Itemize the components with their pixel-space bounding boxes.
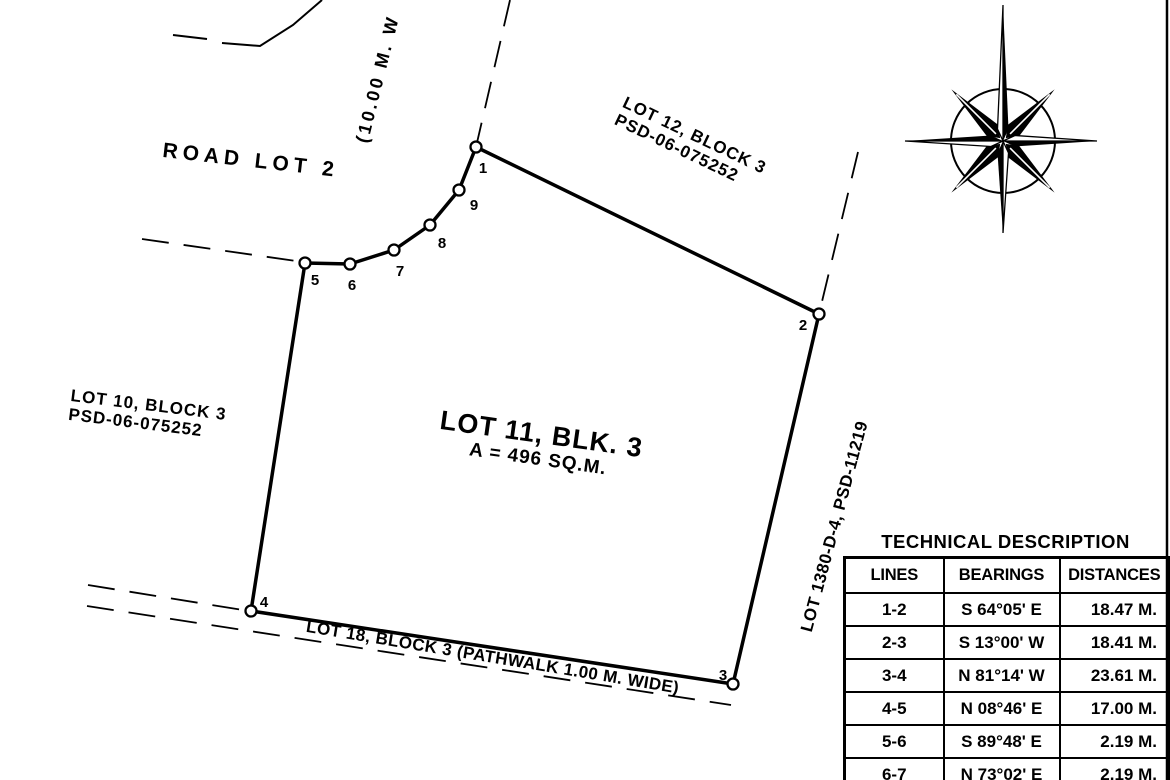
distance-cell: 18.47 M. xyxy=(1060,593,1170,626)
technical-description-title: TECHNICAL DESCRIPTION xyxy=(843,531,1168,556)
distance-cell: 2.19 M. xyxy=(1060,758,1170,780)
dashed-line-to-corner-2 xyxy=(819,152,858,314)
corner-number-2: 2 xyxy=(799,317,807,334)
corner-number-4: 4 xyxy=(260,594,269,611)
corner-number-6: 6 xyxy=(348,277,356,294)
technical-description-table: LINES BEARINGS DISTANCES 1-2 S 64°05' E … xyxy=(843,556,1170,780)
bearing-cell: N 81°14' W xyxy=(944,659,1060,692)
corner-point-7 xyxy=(389,245,400,256)
corner-point-2 xyxy=(814,309,825,320)
corner-number-9: 9 xyxy=(470,197,478,214)
compass-north-point xyxy=(998,5,1009,141)
table-row: 5-6 S 89°48' E 2.19 M. xyxy=(845,725,1170,758)
table-row: 2-3 S 13°00' W 18.41 M. xyxy=(845,626,1170,659)
table-header-row: LINES BEARINGS DISTANCES xyxy=(845,558,1170,594)
compass-west-point xyxy=(905,136,1003,147)
bearing-cell: S 64°05' E xyxy=(944,593,1060,626)
table-row: 3-4 N 81°14' W 23.61 M. xyxy=(845,659,1170,692)
corner-point-6 xyxy=(345,259,356,270)
distance-cell: 23.61 M. xyxy=(1060,659,1170,692)
compass-east-point xyxy=(1003,136,1097,147)
line-cell: 6-7 xyxy=(845,758,944,780)
bearing-cell: S 13°00' W xyxy=(944,626,1060,659)
compass-rose-icon xyxy=(905,5,1097,233)
corner-point-4 xyxy=(246,606,257,617)
corner-point-9 xyxy=(454,185,465,196)
corner-point-8 xyxy=(425,220,436,231)
bearing-cell: N 73°02' E xyxy=(944,758,1060,780)
survey-plan-sheet: 1 2 3 4 5 6 7 8 9 xyxy=(0,0,1170,780)
table-row: 1-2 S 64°05' E 18.47 M. xyxy=(845,593,1170,626)
corner-number-7: 7 xyxy=(396,263,404,280)
dashed-line-to-corner-1 xyxy=(476,0,510,147)
corner-number-5: 5 xyxy=(311,272,319,289)
col-header-lines: LINES xyxy=(845,558,944,594)
table-row: 4-5 N 08°46' E 17.00 M. xyxy=(845,692,1170,725)
distance-cell: 2.19 M. xyxy=(1060,725,1170,758)
road-edge-line xyxy=(222,0,322,46)
distance-cell: 17.00 M. xyxy=(1060,692,1170,725)
compass-south-point xyxy=(998,141,1009,233)
line-cell: 1-2 xyxy=(845,593,944,626)
corner-number-8: 8 xyxy=(438,235,446,252)
bearing-cell: N 08°46' E xyxy=(944,692,1060,725)
line-cell: 4-5 xyxy=(845,692,944,725)
corner-point-3 xyxy=(728,679,739,690)
pathwalk-upper-dashed-line xyxy=(88,585,249,611)
corner-number-1: 1 xyxy=(479,160,487,177)
bearing-cell: S 89°48' E xyxy=(944,725,1060,758)
distance-cell: 18.41 M. xyxy=(1060,626,1170,659)
technical-description-panel: TECHNICAL DESCRIPTION LINES BEARINGS DIS… xyxy=(843,531,1168,780)
lot11-boundary xyxy=(251,147,819,684)
col-header-bearings: BEARINGS xyxy=(944,558,1060,594)
corner-point-1 xyxy=(471,142,482,153)
dashed-line-to-corner-5 xyxy=(142,239,303,262)
table-row: 6-7 N 73°02' E 2.19 M. xyxy=(845,758,1170,780)
col-header-distances: DISTANCES xyxy=(1060,558,1170,594)
corner-number-3: 3 xyxy=(719,667,727,684)
road-edge-dash xyxy=(173,35,207,39)
line-cell: 2-3 xyxy=(845,626,944,659)
line-cell: 5-6 xyxy=(845,725,944,758)
corner-point-5 xyxy=(300,258,311,269)
line-cell: 3-4 xyxy=(845,659,944,692)
